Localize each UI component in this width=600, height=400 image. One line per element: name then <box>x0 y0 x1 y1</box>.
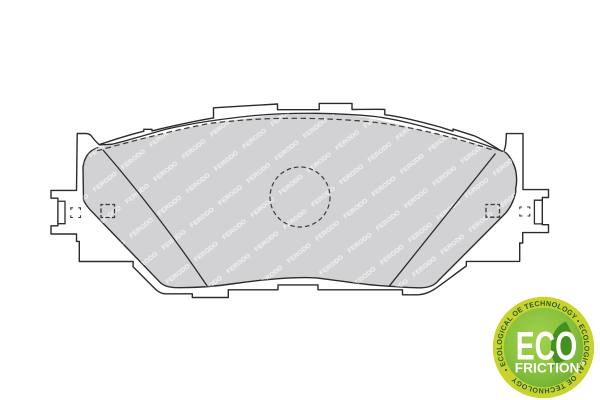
svg-text:FRICTION: FRICTION <box>515 360 580 375</box>
svg-text:®: ® <box>581 360 586 367</box>
